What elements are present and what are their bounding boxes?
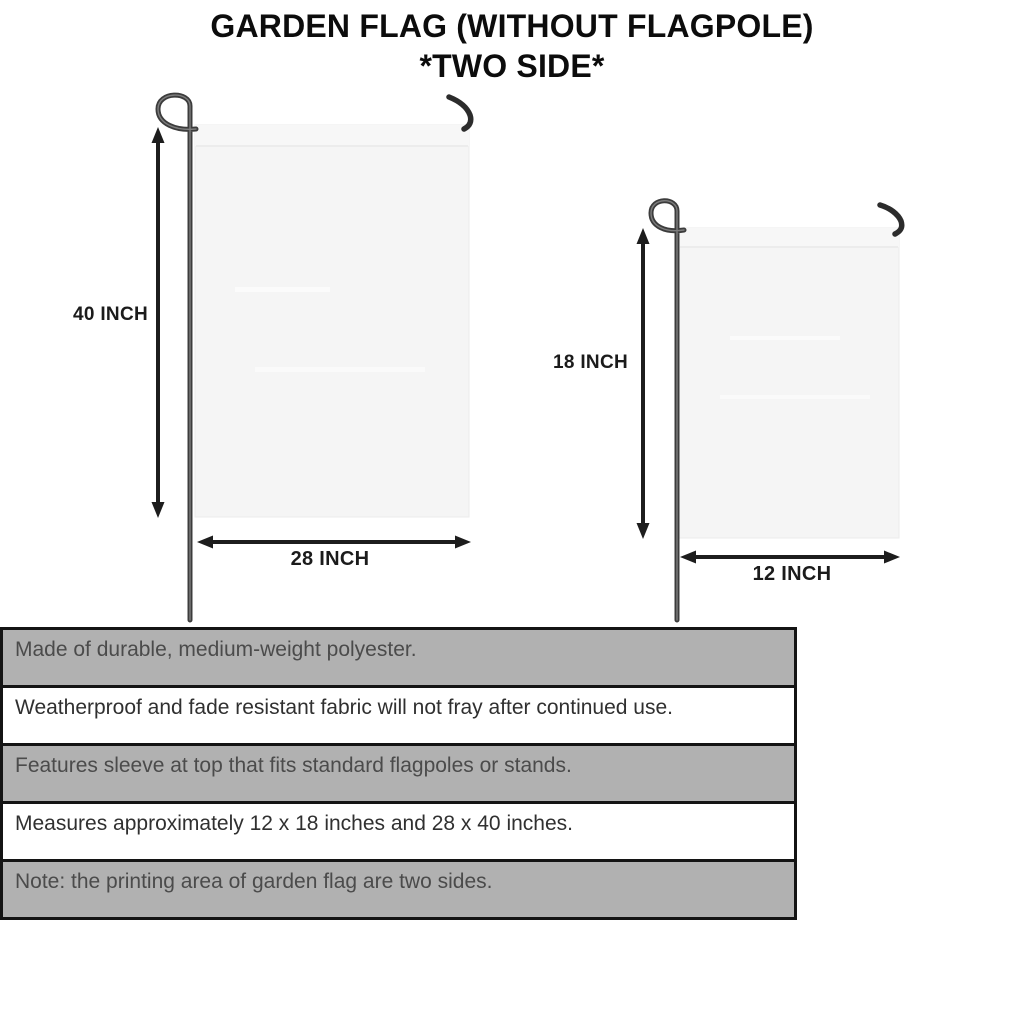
large-flag-hook-icon (449, 97, 471, 129)
small-flag-sleeve (679, 228, 899, 247)
small-flag-fold-mark (730, 336, 840, 340)
small-flag-height-arrow (637, 228, 650, 539)
small-flag-height-label: 18 INCH (508, 352, 628, 374)
feature-row-sleeve: Features sleeve at top that fits standar… (3, 743, 794, 801)
large-flag-fabric (195, 125, 469, 517)
product-info-image: GARDEN FLAG (WITHOUT FLAGPOLE) *TWO SIDE… (0, 0, 1024, 1024)
small-flag-group (637, 201, 902, 620)
large-flag-width-arrow (197, 536, 471, 549)
large-flag-group (152, 95, 472, 620)
large-flag-sleeve (195, 125, 469, 146)
large-flagpole-highlight (158, 95, 196, 620)
feature-row-material: Made of durable, medium-weight polyester… (3, 630, 794, 685)
large-flag-width-label: 28 INCH (230, 548, 430, 571)
large-flag-fold-mark (235, 287, 330, 292)
large-flag-height-arrow (152, 127, 165, 518)
feature-row-weatherproof: Weatherproof and fade resistant fabric w… (3, 685, 794, 743)
small-flagpole (651, 201, 684, 620)
large-flag-fold-mark (255, 367, 425, 372)
feature-row-note: Note: the printing area of garden flag a… (3, 859, 794, 917)
small-flag-width-arrow (680, 551, 900, 564)
feature-table: Made of durable, medium-weight polyester… (0, 627, 797, 920)
feature-row-measures: Measures approximately 12 x 18 inches an… (3, 801, 794, 859)
small-flag-fabric (679, 228, 899, 538)
small-flag-width-label: 12 INCH (690, 563, 894, 586)
small-flag-fold-mark (720, 395, 870, 399)
large-flag-height-label: 40 INCH (28, 304, 148, 326)
